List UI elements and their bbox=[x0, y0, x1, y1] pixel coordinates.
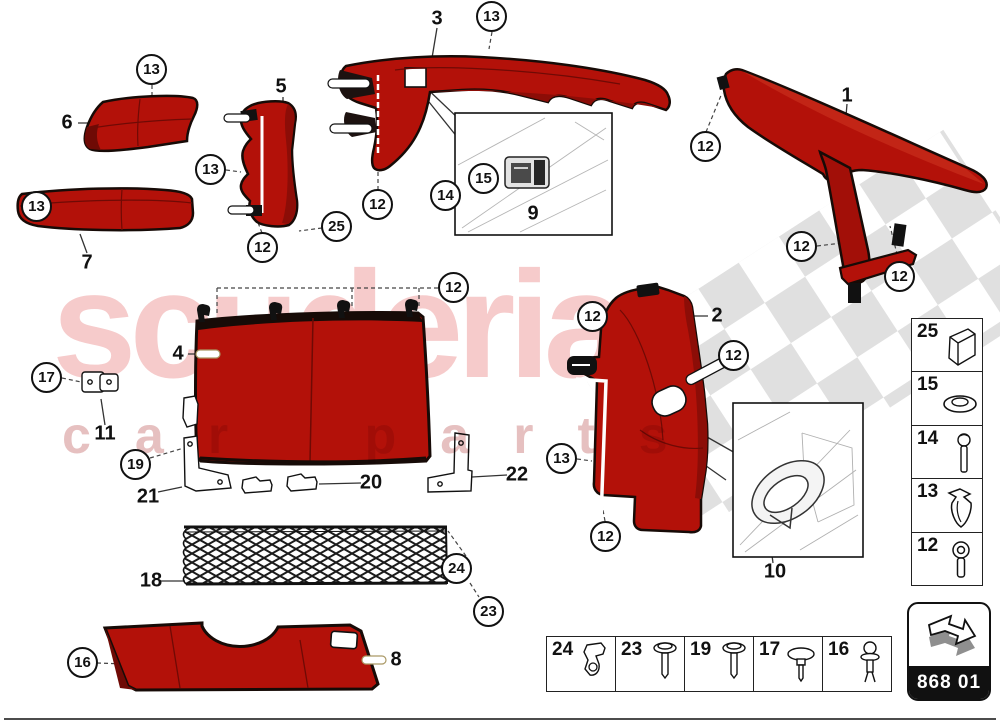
part-8-firewall-trim bbox=[105, 623, 386, 690]
part-label-21: 21 bbox=[137, 486, 159, 509]
legend-num: 17 bbox=[759, 639, 780, 661]
legend-num: 19 bbox=[690, 639, 711, 661]
part-20-clip-b bbox=[287, 474, 317, 491]
legend-row-12[interactable]: 12 bbox=[912, 532, 982, 585]
callout-12[interactable]: 12 bbox=[362, 189, 393, 220]
foam-block-icon bbox=[942, 325, 980, 369]
part-label-11: 11 bbox=[94, 423, 115, 446]
part-label-8: 8 bbox=[390, 649, 401, 672]
inset-detail-part-10 bbox=[733, 403, 863, 557]
ball-stud-icon bbox=[853, 640, 887, 688]
page-arrow-icon bbox=[919, 611, 979, 659]
bolt-icon bbox=[944, 432, 980, 480]
parts-diagram-page: scuderia bbox=[0, 0, 1000, 727]
part-5-b-pillar-trim bbox=[224, 101, 297, 226]
hardware-legend-right: 25 15 14 13 bbox=[911, 318, 983, 586]
part-18-luggage-net bbox=[184, 527, 448, 584]
screw-icon bbox=[650, 640, 680, 686]
legend-row-14[interactable]: 14 bbox=[912, 425, 982, 478]
washer-icon bbox=[940, 378, 980, 422]
part-4-rear-wall-panel bbox=[196, 299, 431, 464]
callout-15[interactable]: 15 bbox=[468, 163, 499, 194]
callout-13[interactable]: 13 bbox=[195, 154, 226, 185]
bracket-clip-icon bbox=[577, 640, 611, 686]
part-20-clip-a bbox=[242, 477, 272, 493]
callout-12[interactable]: 12 bbox=[577, 301, 608, 332]
callout-12[interactable]: 12 bbox=[786, 231, 817, 262]
part-label-20: 20 bbox=[360, 472, 382, 495]
part-label-5: 5 bbox=[275, 76, 286, 99]
legend-num: 13 bbox=[917, 481, 938, 503]
callout-19[interactable]: 19 bbox=[120, 449, 151, 480]
legend-num: 15 bbox=[917, 374, 938, 396]
diagram-group-badge[interactable]: 868 01 bbox=[907, 602, 991, 701]
part-6-sill-trim bbox=[85, 96, 198, 151]
part-label-10: 10 bbox=[764, 561, 786, 584]
callout-13[interactable]: 13 bbox=[476, 1, 507, 32]
legend-row-15[interactable]: 15 bbox=[912, 371, 982, 424]
callout-12[interactable]: 12 bbox=[438, 272, 469, 303]
legend-num: 25 bbox=[917, 321, 938, 343]
part-label-18: 18 bbox=[140, 570, 162, 593]
part-19-link bbox=[183, 396, 198, 427]
part-label-22: 22 bbox=[506, 464, 528, 487]
legend-cell-23[interactable]: 23 bbox=[615, 637, 684, 691]
screw-icon bbox=[719, 640, 749, 686]
legend-cell-19[interactable]: 19 bbox=[684, 637, 753, 691]
callout-13[interactable]: 13 bbox=[21, 191, 52, 222]
badge-code: 868 01 bbox=[909, 666, 989, 699]
part-label-3: 3 bbox=[431, 8, 442, 31]
callout-14[interactable]: 14 bbox=[430, 180, 461, 211]
legend-num: 16 bbox=[828, 639, 849, 661]
callout-12[interactable]: 12 bbox=[690, 131, 721, 162]
callout-25[interactable]: 25 bbox=[321, 211, 352, 242]
legend-num: 14 bbox=[917, 428, 938, 450]
callout-12[interactable]: 12 bbox=[884, 261, 915, 292]
legend-num: 24 bbox=[552, 639, 573, 661]
legend-num: 12 bbox=[917, 535, 938, 557]
callout-12[interactable]: 12 bbox=[718, 340, 749, 371]
part-label-6: 6 bbox=[61, 112, 72, 135]
callout-12[interactable]: 12 bbox=[590, 521, 621, 552]
callout-16[interactable]: 16 bbox=[67, 647, 98, 678]
hardware-legend-bottom: 24 23 19 17 bbox=[546, 636, 892, 692]
legend-row-13[interactable]: 13 bbox=[912, 478, 982, 531]
legend-cell-16[interactable]: 16 bbox=[822, 637, 891, 691]
part-9-latch bbox=[505, 157, 549, 188]
callout-24[interactable]: 24 bbox=[441, 553, 472, 584]
screw-icon bbox=[942, 539, 980, 587]
callout-12[interactable]: 12 bbox=[247, 232, 278, 263]
part-label-2: 2 bbox=[711, 305, 722, 328]
clip-icon bbox=[940, 485, 980, 533]
legend-row-25[interactable]: 25 bbox=[912, 319, 982, 371]
legend-cell-24[interactable]: 24 bbox=[547, 637, 615, 691]
part-11-bracket bbox=[82, 372, 118, 392]
part-22-bracket bbox=[428, 433, 472, 492]
part-label-9: 9 bbox=[527, 203, 538, 226]
legend-cell-17[interactable]: 17 bbox=[753, 637, 822, 691]
push-rivet-icon bbox=[784, 640, 818, 686]
callout-13[interactable]: 13 bbox=[546, 443, 577, 474]
callout-23[interactable]: 23 bbox=[473, 596, 504, 627]
part-label-1: 1 bbox=[841, 85, 852, 108]
part-label-4: 4 bbox=[172, 343, 183, 366]
legend-num: 23 bbox=[621, 639, 642, 661]
callout-13[interactable]: 13 bbox=[136, 54, 167, 85]
part-label-7: 7 bbox=[81, 252, 92, 275]
callout-17[interactable]: 17 bbox=[31, 362, 62, 393]
